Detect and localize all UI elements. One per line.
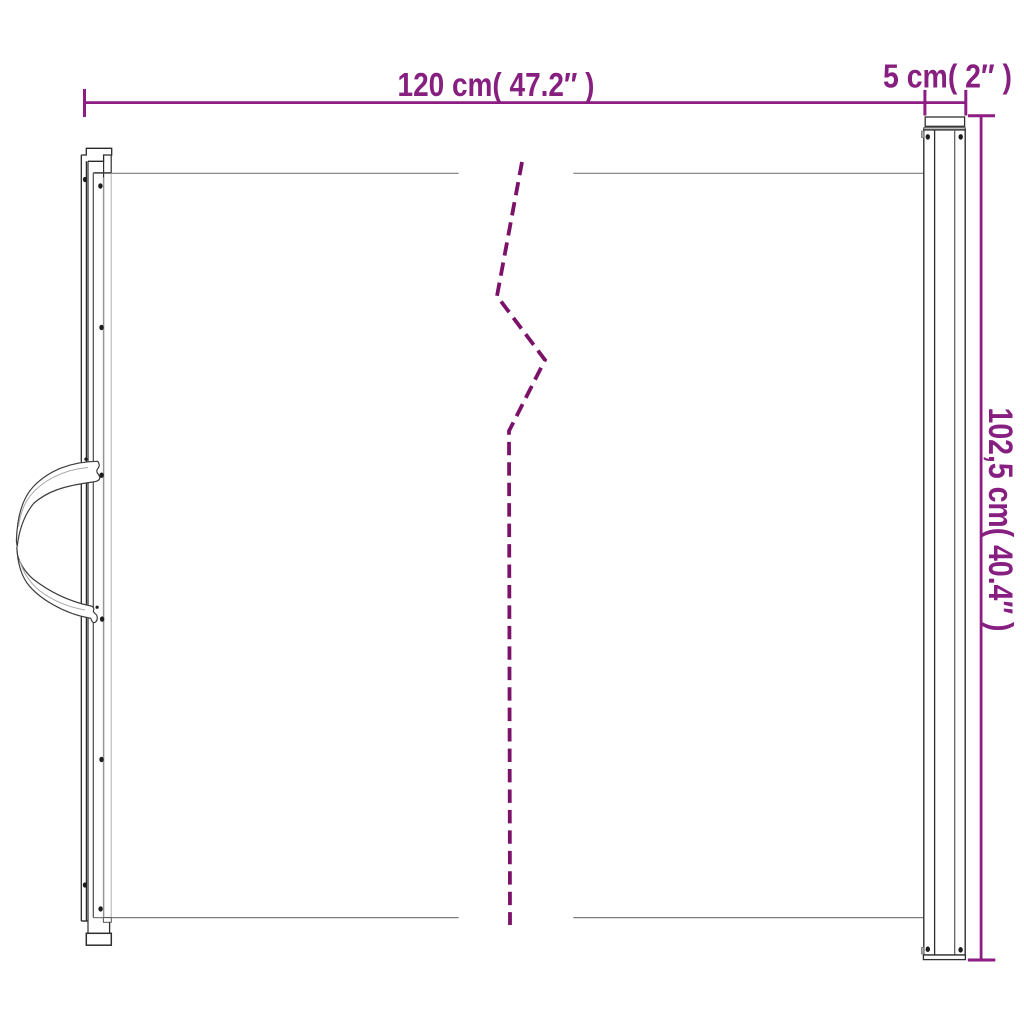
svg-text:102,5 cm( 40.4″ ): 102,5 cm( 40.4″ ): [981, 408, 1019, 632]
svg-text:5 cm( 2″ ): 5 cm( 2″ ): [883, 58, 1012, 95]
svg-text:120 cm( 47.2″ ): 120 cm( 47.2″ ): [398, 66, 595, 103]
